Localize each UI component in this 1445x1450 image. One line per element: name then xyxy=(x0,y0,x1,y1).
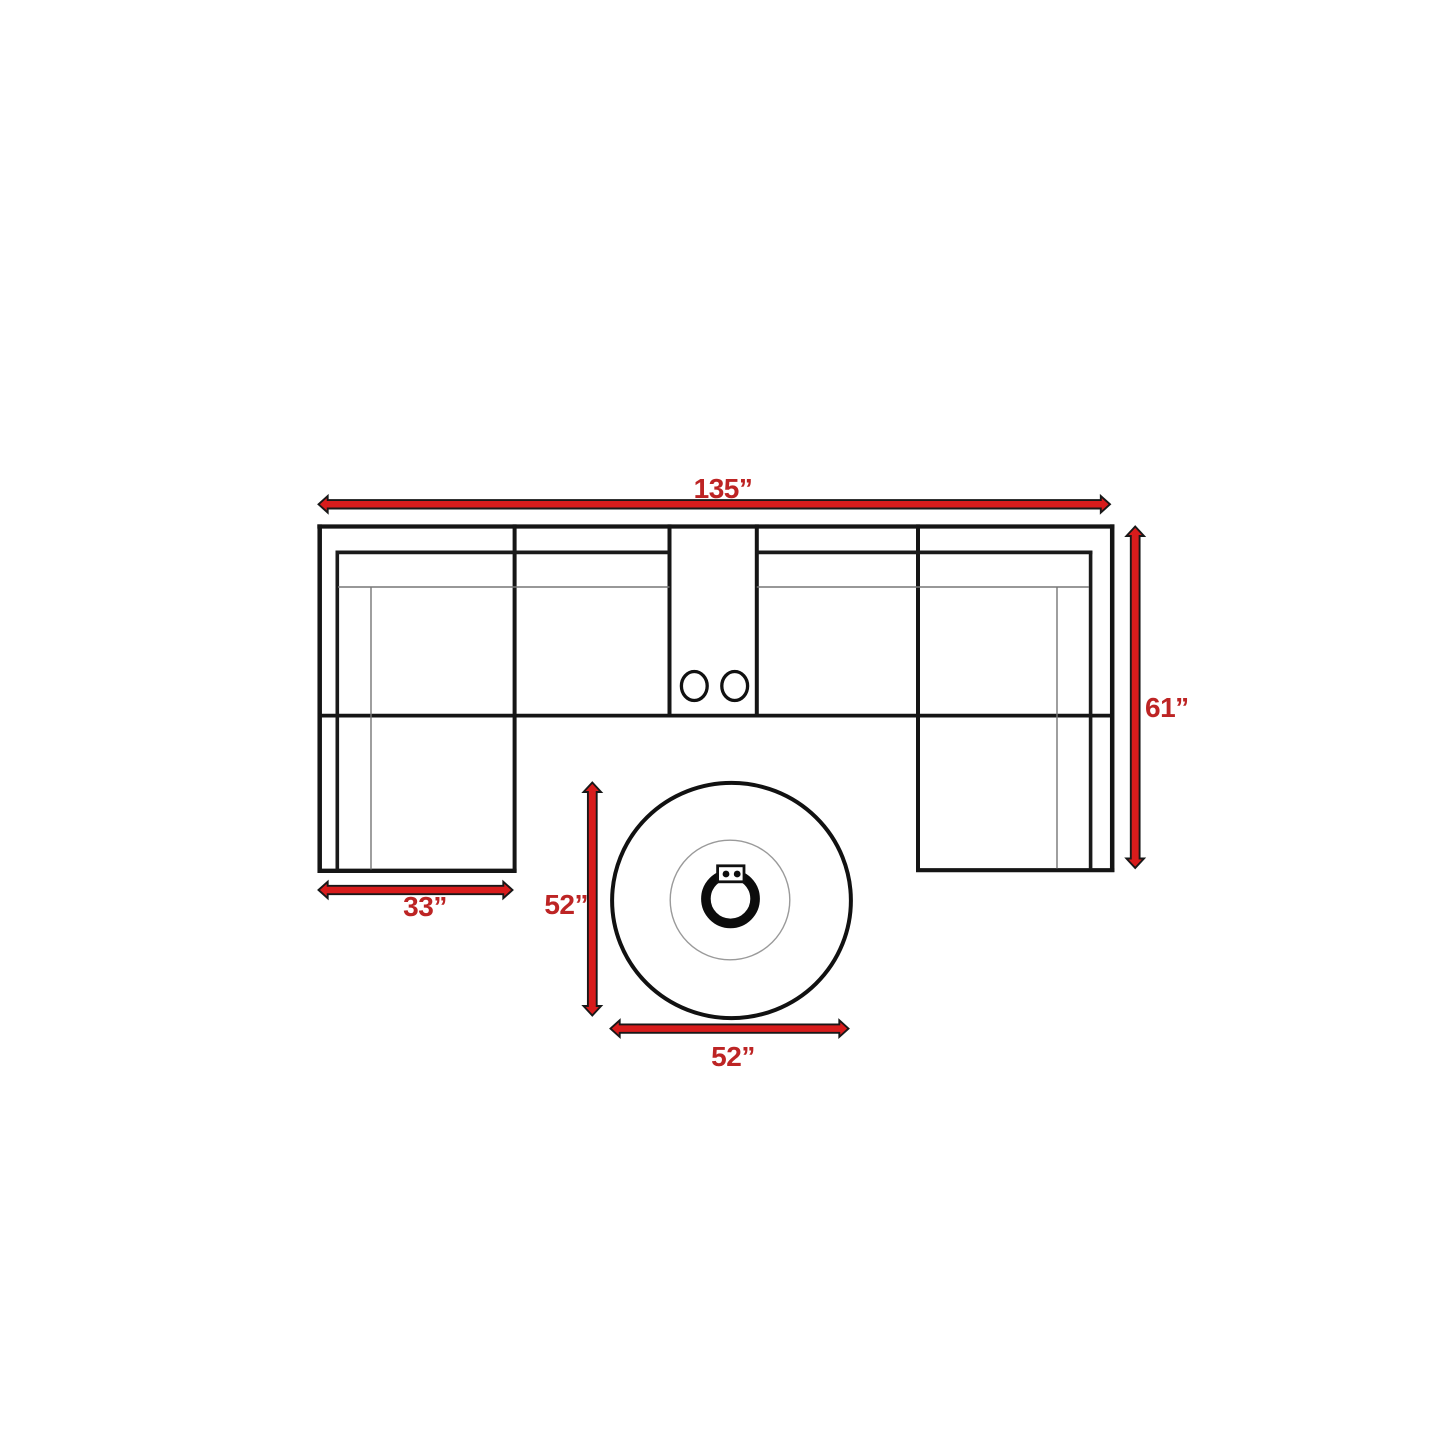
svg-text:52”: 52” xyxy=(544,889,588,920)
svg-text:52”: 52” xyxy=(711,1041,755,1072)
svg-text:135”: 135” xyxy=(694,473,753,504)
svg-text:61”: 61” xyxy=(1145,692,1189,723)
svg-text:33”: 33” xyxy=(403,891,447,922)
